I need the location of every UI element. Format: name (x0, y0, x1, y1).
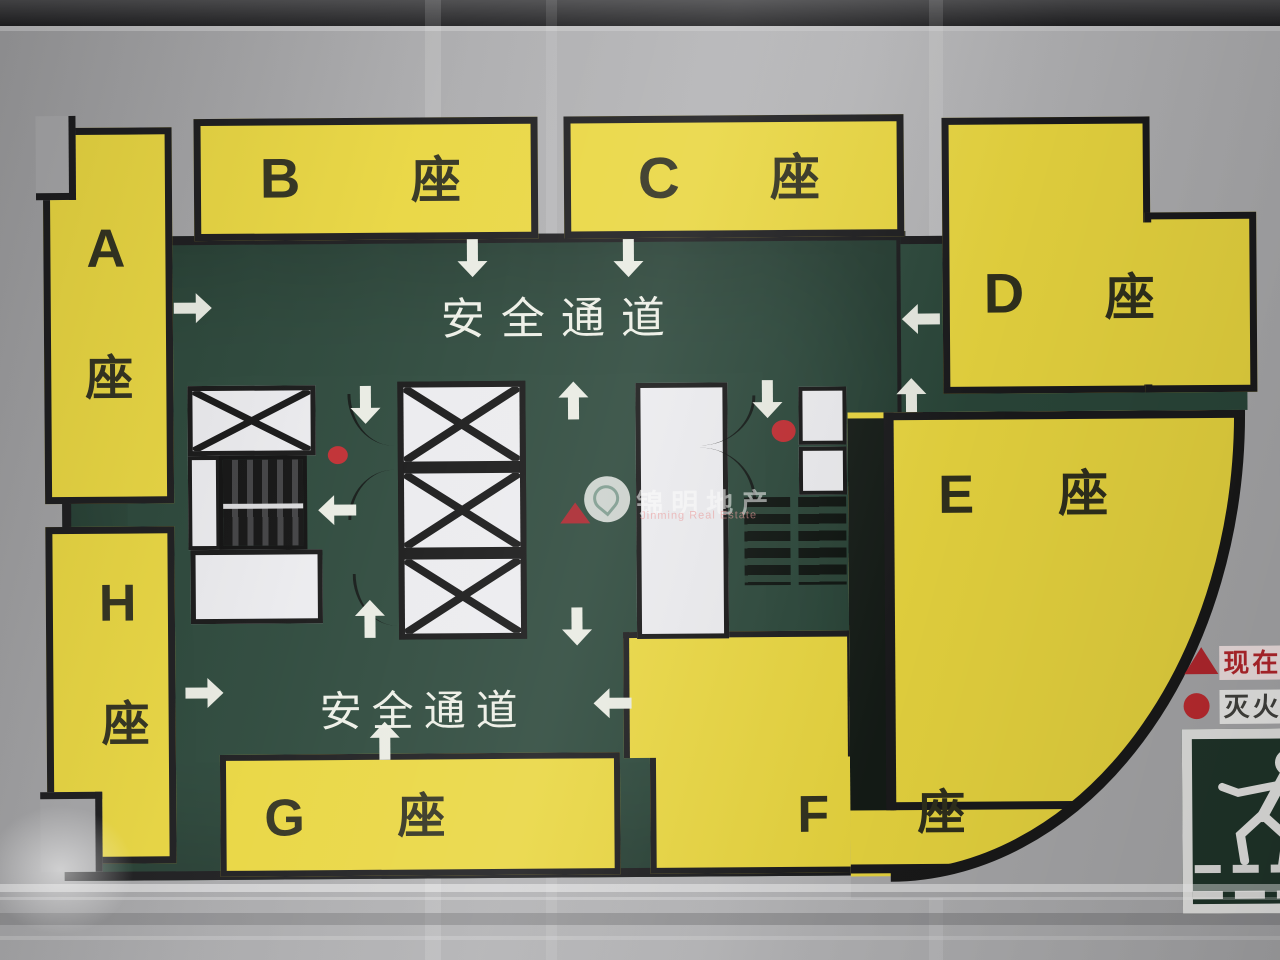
watermark-logo-icon (584, 476, 630, 522)
escape-arrow-center-bottom-icon (562, 605, 592, 645)
watermark-swirl (588, 480, 625, 517)
block-g-letter: G (264, 792, 305, 844)
escape-arrow-from-c-icon (613, 237, 643, 277)
block-f-letter: F (797, 789, 829, 841)
legend-current-position-icon (1184, 647, 1218, 674)
legend-current-position-label: 现在位置 (1219, 645, 1280, 680)
legend-fire-extinguisher-label: 灭火器 (1219, 689, 1280, 724)
escape-arrow-from-f-icon (593, 688, 633, 718)
block-f-suffix: 座 (917, 790, 965, 838)
corridor-label-top: 安全通道 (441, 282, 681, 348)
block-d-extension (1144, 212, 1257, 393)
evacuation-map-sign: 安全通道 安全通道 A 座 B 座 C 座 D 座 E 座 F 座 G 座 H … (0, 0, 1280, 960)
stair-dash (1193, 891, 1223, 899)
corridor-label-bottom: 安全通道 (319, 677, 527, 739)
escape-arrow-core-mid-icon (318, 495, 358, 525)
stair-dash (1233, 865, 1259, 873)
escape-arrow-from-b-icon (457, 237, 487, 277)
stairwell-icon-left (219, 455, 308, 550)
block-a-step-cutout (35, 116, 76, 200)
watermark-text-en: Jinming Real Estate (640, 509, 757, 522)
photo-evacuation-sign: 安全通道 安全通道 A 座 B 座 C 座 D 座 E 座 F 座 G 座 H … (0, 0, 1280, 960)
block-d (941, 116, 1151, 393)
elevator-x-icon (405, 559, 522, 634)
escape-arrow-center-icon (558, 381, 588, 421)
elevator-bank-center (397, 381, 527, 640)
block-h-letter: H (99, 578, 137, 630)
block-f-upper (623, 631, 854, 759)
room-box-left (190, 549, 323, 624)
block-d-letter: D (984, 265, 1025, 321)
legend-fire-extinguisher-icon (1184, 693, 1210, 719)
stairwell-icon-right-2 (798, 497, 847, 585)
stair-dash (1271, 864, 1280, 872)
block-a-letter: A (86, 222, 125, 276)
window-box-1 (798, 387, 846, 445)
stair-dash (1195, 865, 1221, 873)
block-e-letter: E (938, 468, 974, 522)
block-h-suffix: 座 (102, 701, 150, 749)
fire-extinguisher-marker-right-icon (772, 420, 796, 442)
block-c (563, 114, 904, 238)
block-b-letter: B (260, 150, 301, 206)
escape-arrow-from-d-icon (902, 304, 942, 334)
elevator-cell (404, 473, 521, 548)
block-c-letter: C (638, 150, 680, 208)
exit-stair-sign (1182, 728, 1280, 914)
elevator-x-icon (403, 387, 520, 462)
elevator-cell (405, 559, 522, 634)
block-b-suffix: 座 (411, 155, 461, 205)
elevator-x-icon (404, 473, 521, 548)
block-c-suffix: 座 (770, 153, 820, 203)
stair-dash (1235, 891, 1265, 899)
elevator-cell (403, 387, 520, 462)
window-box-2 (799, 447, 847, 495)
reflection-splotch (0, 800, 140, 940)
elevator-box-left (187, 385, 315, 456)
fire-extinguisher-marker-left-icon (328, 446, 348, 464)
block-b (193, 117, 538, 241)
escape-arrow-core-left-icon (350, 384, 380, 424)
escape-arrow-core-left-bottom-icon (355, 600, 385, 640)
block-a-suffix: 座 (85, 356, 133, 404)
stair-rail (223, 503, 303, 509)
stair-landing-left (188, 456, 221, 550)
escape-arrow-core-right-icon (752, 378, 782, 418)
block-d-suffix: 座 (1105, 272, 1155, 322)
block-g-suffix: 座 (397, 793, 445, 841)
elevator-x-icon (192, 390, 310, 451)
escape-arrow-from-h-icon (183, 678, 223, 708)
escape-arrow-from-a-icon (172, 293, 212, 323)
block-e-suffix: 座 (1058, 469, 1108, 519)
running-man-icon (1210, 742, 1280, 873)
